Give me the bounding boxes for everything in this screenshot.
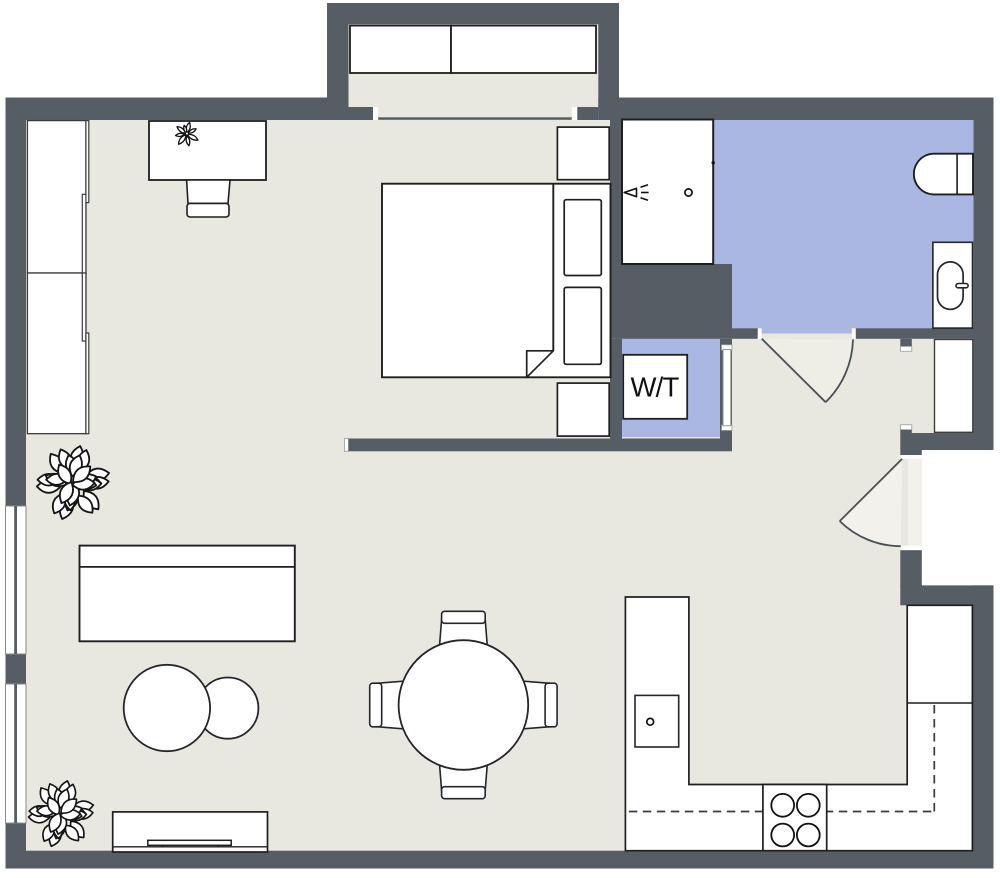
svg-text:W/T: W/T	[631, 372, 680, 403]
